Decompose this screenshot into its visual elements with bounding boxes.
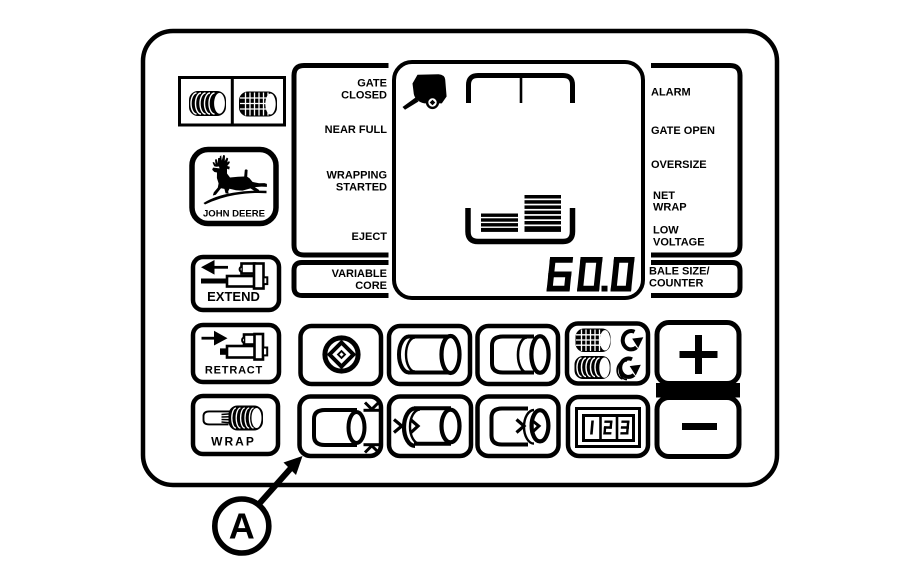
svg-text:RETRACT: RETRACT: [205, 365, 263, 377]
svg-text:A: A: [229, 506, 255, 547]
svg-text:OVERSIZE: OVERSIZE: [651, 159, 707, 171]
svg-text:EXTEND: EXTEND: [207, 289, 260, 304]
svg-text:GATE OPEN: GATE OPEN: [651, 125, 715, 137]
svg-text:NET: NET: [653, 190, 675, 202]
svg-text:VOLTAGE: VOLTAGE: [653, 237, 705, 249]
svg-text:BALE SIZE/: BALE SIZE/: [649, 266, 710, 278]
svg-text:LOW: LOW: [653, 225, 679, 237]
svg-text:EJECT: EJECT: [352, 231, 388, 243]
svg-text:ALARM: ALARM: [651, 87, 691, 99]
svg-text:NEAR FULL: NEAR FULL: [325, 124, 388, 136]
svg-text:COUNTER: COUNTER: [649, 278, 703, 290]
svg-text:JOHN DEERE: JOHN DEERE: [203, 209, 265, 219]
svg-text:WRAP: WRAP: [211, 435, 256, 449]
svg-text:CLOSED: CLOSED: [341, 90, 387, 102]
svg-text:WRAP: WRAP: [653, 202, 687, 214]
svg-text:GATE: GATE: [357, 78, 387, 90]
svg-text:STARTED: STARTED: [336, 182, 387, 194]
svg-text:CORE: CORE: [355, 280, 387, 292]
svg-text:WRAPPING: WRAPPING: [327, 170, 388, 182]
svg-text:VARIABLE: VARIABLE: [332, 268, 387, 280]
